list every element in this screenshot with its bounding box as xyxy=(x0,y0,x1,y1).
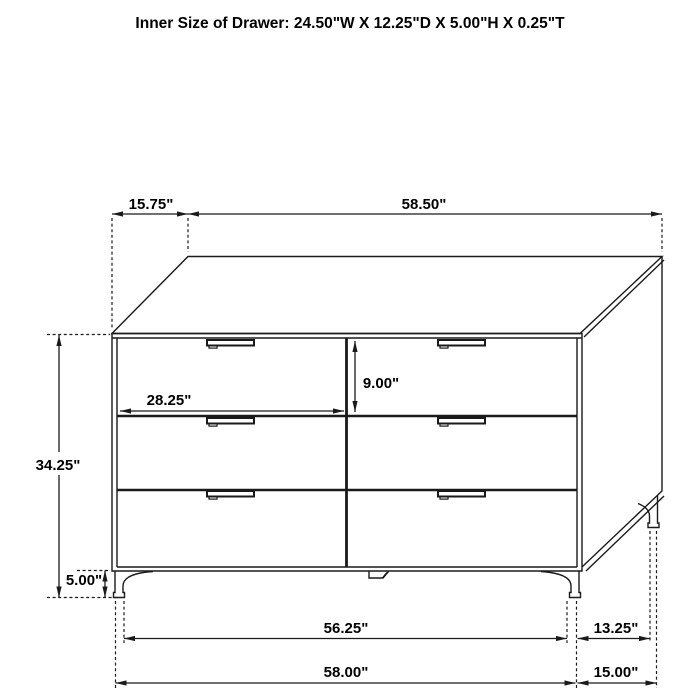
dresser-dimension-diagram: Inner Size of Drawer: 24.50"W X 12.25"D … xyxy=(0,0,700,700)
label-drawer-inner-width: 28.25" xyxy=(147,392,192,409)
dresser-drawing xyxy=(112,257,664,598)
side-panel-bottom-edge xyxy=(586,496,664,571)
label-top-depth: 15.75" xyxy=(129,196,174,213)
drawer-handle-top-right xyxy=(438,340,485,348)
top-face xyxy=(112,257,662,334)
drawer-handle-bottom-right xyxy=(438,491,485,499)
drawer-handle-bottom-left xyxy=(207,491,254,499)
label-base-side-overall: 15.00" xyxy=(594,664,639,681)
dimension-labels: 15.75" 58.50" 34.25" 5.00" 28.25" 9.00" … xyxy=(32,196,638,681)
drawer-handle-top-left xyxy=(207,340,254,348)
label-base-front-inner: 56.25" xyxy=(324,620,369,637)
drawer-handle-middle-right xyxy=(438,418,485,426)
label-base-front-overall: 58.00" xyxy=(324,664,369,681)
page-title: Inner Size of Drawer: 24.50"W X 12.25"D … xyxy=(135,15,565,32)
label-leg-height: 5.00" xyxy=(66,572,102,589)
label-drawer-face-height: 9.00" xyxy=(363,375,399,392)
dimension-lines xyxy=(59,214,662,683)
center-foot xyxy=(369,571,389,578)
extension-lines xyxy=(47,218,662,688)
drawer-handle-middle-left xyxy=(207,418,254,426)
top-panel-right-edge xyxy=(584,260,664,337)
label-overall-height: 34.25" xyxy=(36,457,81,474)
diagram-svg: Inner Size of Drawer: 24.50"W X 12.25"D … xyxy=(0,0,700,700)
front-left-leg xyxy=(114,571,154,598)
label-top-width: 58.50" xyxy=(402,196,447,213)
front-right-leg xyxy=(541,571,581,598)
label-base-side-inner: 13.25" xyxy=(594,620,639,637)
